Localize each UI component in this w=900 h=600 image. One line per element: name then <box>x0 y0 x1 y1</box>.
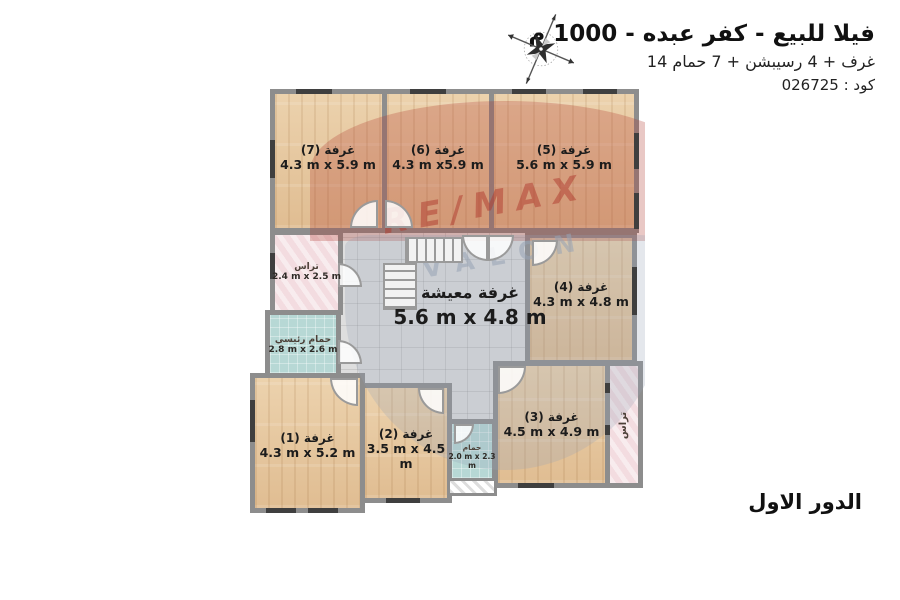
listing-header: فيلا للبيع - كفر عبده - 1000 م 14 غرف + … <box>528 20 875 94</box>
listing-subtitle: 14 غرف + 4 رسيبشن + 7 حمام <box>528 52 875 71</box>
bathroom-small-label: حمام 2.0 m x 2.3 m <box>447 443 497 470</box>
room-5-label: غرفة (5) 5.6 m x 5.9 m <box>489 143 639 172</box>
window-marker <box>386 498 420 503</box>
room-7-label: غرفة (7) 4.3 m x 5.9 m <box>268 143 388 172</box>
duct-shaft <box>447 478 497 496</box>
window-marker <box>410 89 446 94</box>
window-marker <box>518 483 554 488</box>
page: { "header": { "title": "فيلا للبيع - كفر… <box>0 0 900 600</box>
room-6-label: غرفة (6) 4.3 m x5.9 m <box>382 143 494 172</box>
floor-plan: RE/MAX AVALON غرفة (7) 4.3 m x 5.9 m غرف… <box>250 85 645 517</box>
window-marker <box>512 89 546 94</box>
window-marker <box>308 508 338 513</box>
window-marker <box>605 383 610 393</box>
room-3-label: غرفة (3) 4.5 m x 4.9 m <box>493 410 610 439</box>
staircase-upper-flight <box>405 237 463 263</box>
compass-rose-icon <box>506 14 576 84</box>
room-2-label: غرفة (2) 3.5 m x 4.5 m <box>360 427 452 471</box>
terrace-right-label: تراس <box>602 413 645 432</box>
window-marker <box>296 89 332 94</box>
window-marker <box>583 89 617 94</box>
bathroom-main-label: حمام رئيسي 2.8 m x 2.6 m <box>265 335 341 355</box>
window-marker <box>634 193 639 229</box>
terrace-left-label: تراس 2.4 m x 2.5 m <box>270 262 343 282</box>
floor-label: الدور الاول <box>748 490 862 514</box>
room-4-label: غرفة (4) 4.3 m x 4.8 m <box>525 280 637 309</box>
listing-title: فيلا للبيع - كفر عبده - 1000 م <box>528 20 875 49</box>
room-1-label: غرفة (1) 4.3 m x 5.2 m <box>250 431 365 460</box>
window-marker <box>266 508 296 513</box>
